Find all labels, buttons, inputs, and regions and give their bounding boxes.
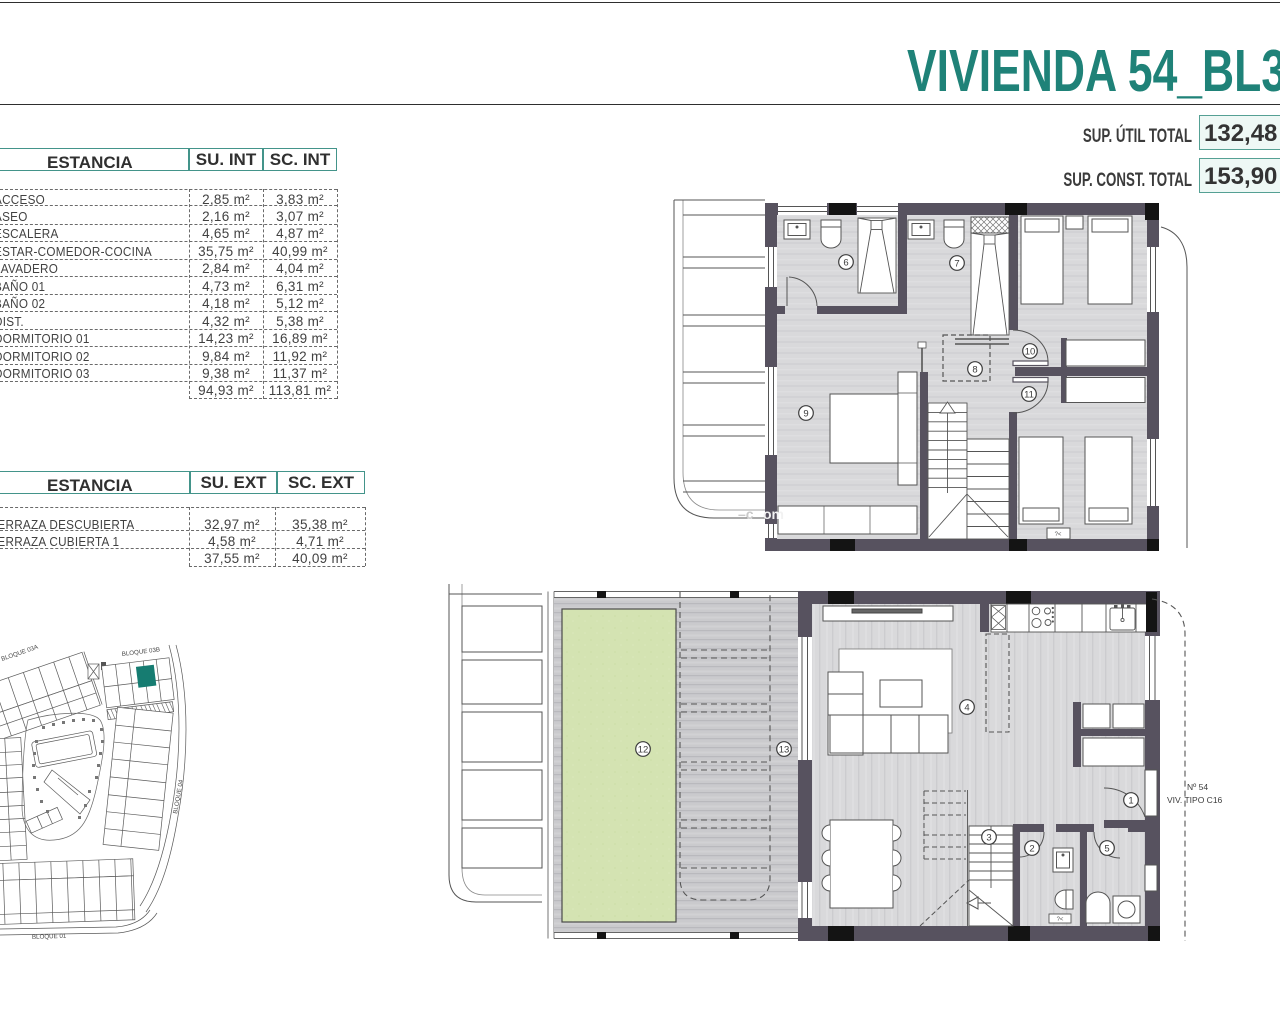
svg-text:BLOQUE 03B: BLOQUE 03B: [121, 646, 160, 658]
svg-text:Nº 54: Nº 54: [1187, 782, 1208, 792]
svg-text:8: 8: [972, 364, 977, 375]
svg-text:BLOQUE 01: BLOQUE 01: [32, 933, 67, 941]
svg-text:BLOQUE 03A: BLOQUE 03A: [0, 643, 40, 662]
svg-text:13: 13: [779, 744, 790, 755]
svg-text:–c: –c: [738, 506, 754, 522]
svg-text:om: om: [763, 506, 784, 522]
svg-text:5: 5: [1104, 843, 1109, 854]
svg-text:7: 7: [954, 258, 959, 269]
svg-text:11: 11: [1024, 389, 1034, 400]
svg-text:?<: ?<: [1057, 917, 1064, 923]
svg-text:6: 6: [843, 257, 848, 268]
svg-text:10: 10: [1025, 346, 1036, 357]
svg-text:1: 1: [1128, 795, 1133, 806]
svg-text:9: 9: [803, 408, 808, 419]
svg-text:?<: ?<: [1055, 532, 1062, 538]
svg-text:4: 4: [964, 702, 969, 713]
svg-text:BLOQUE 04: BLOQUE 04: [172, 779, 185, 815]
svg-text:VIV. TIPO C16: VIV. TIPO C16: [1167, 795, 1223, 805]
svg-text:2: 2: [1029, 843, 1034, 854]
svg-text:3: 3: [986, 832, 991, 843]
svg-text:12: 12: [638, 744, 649, 755]
